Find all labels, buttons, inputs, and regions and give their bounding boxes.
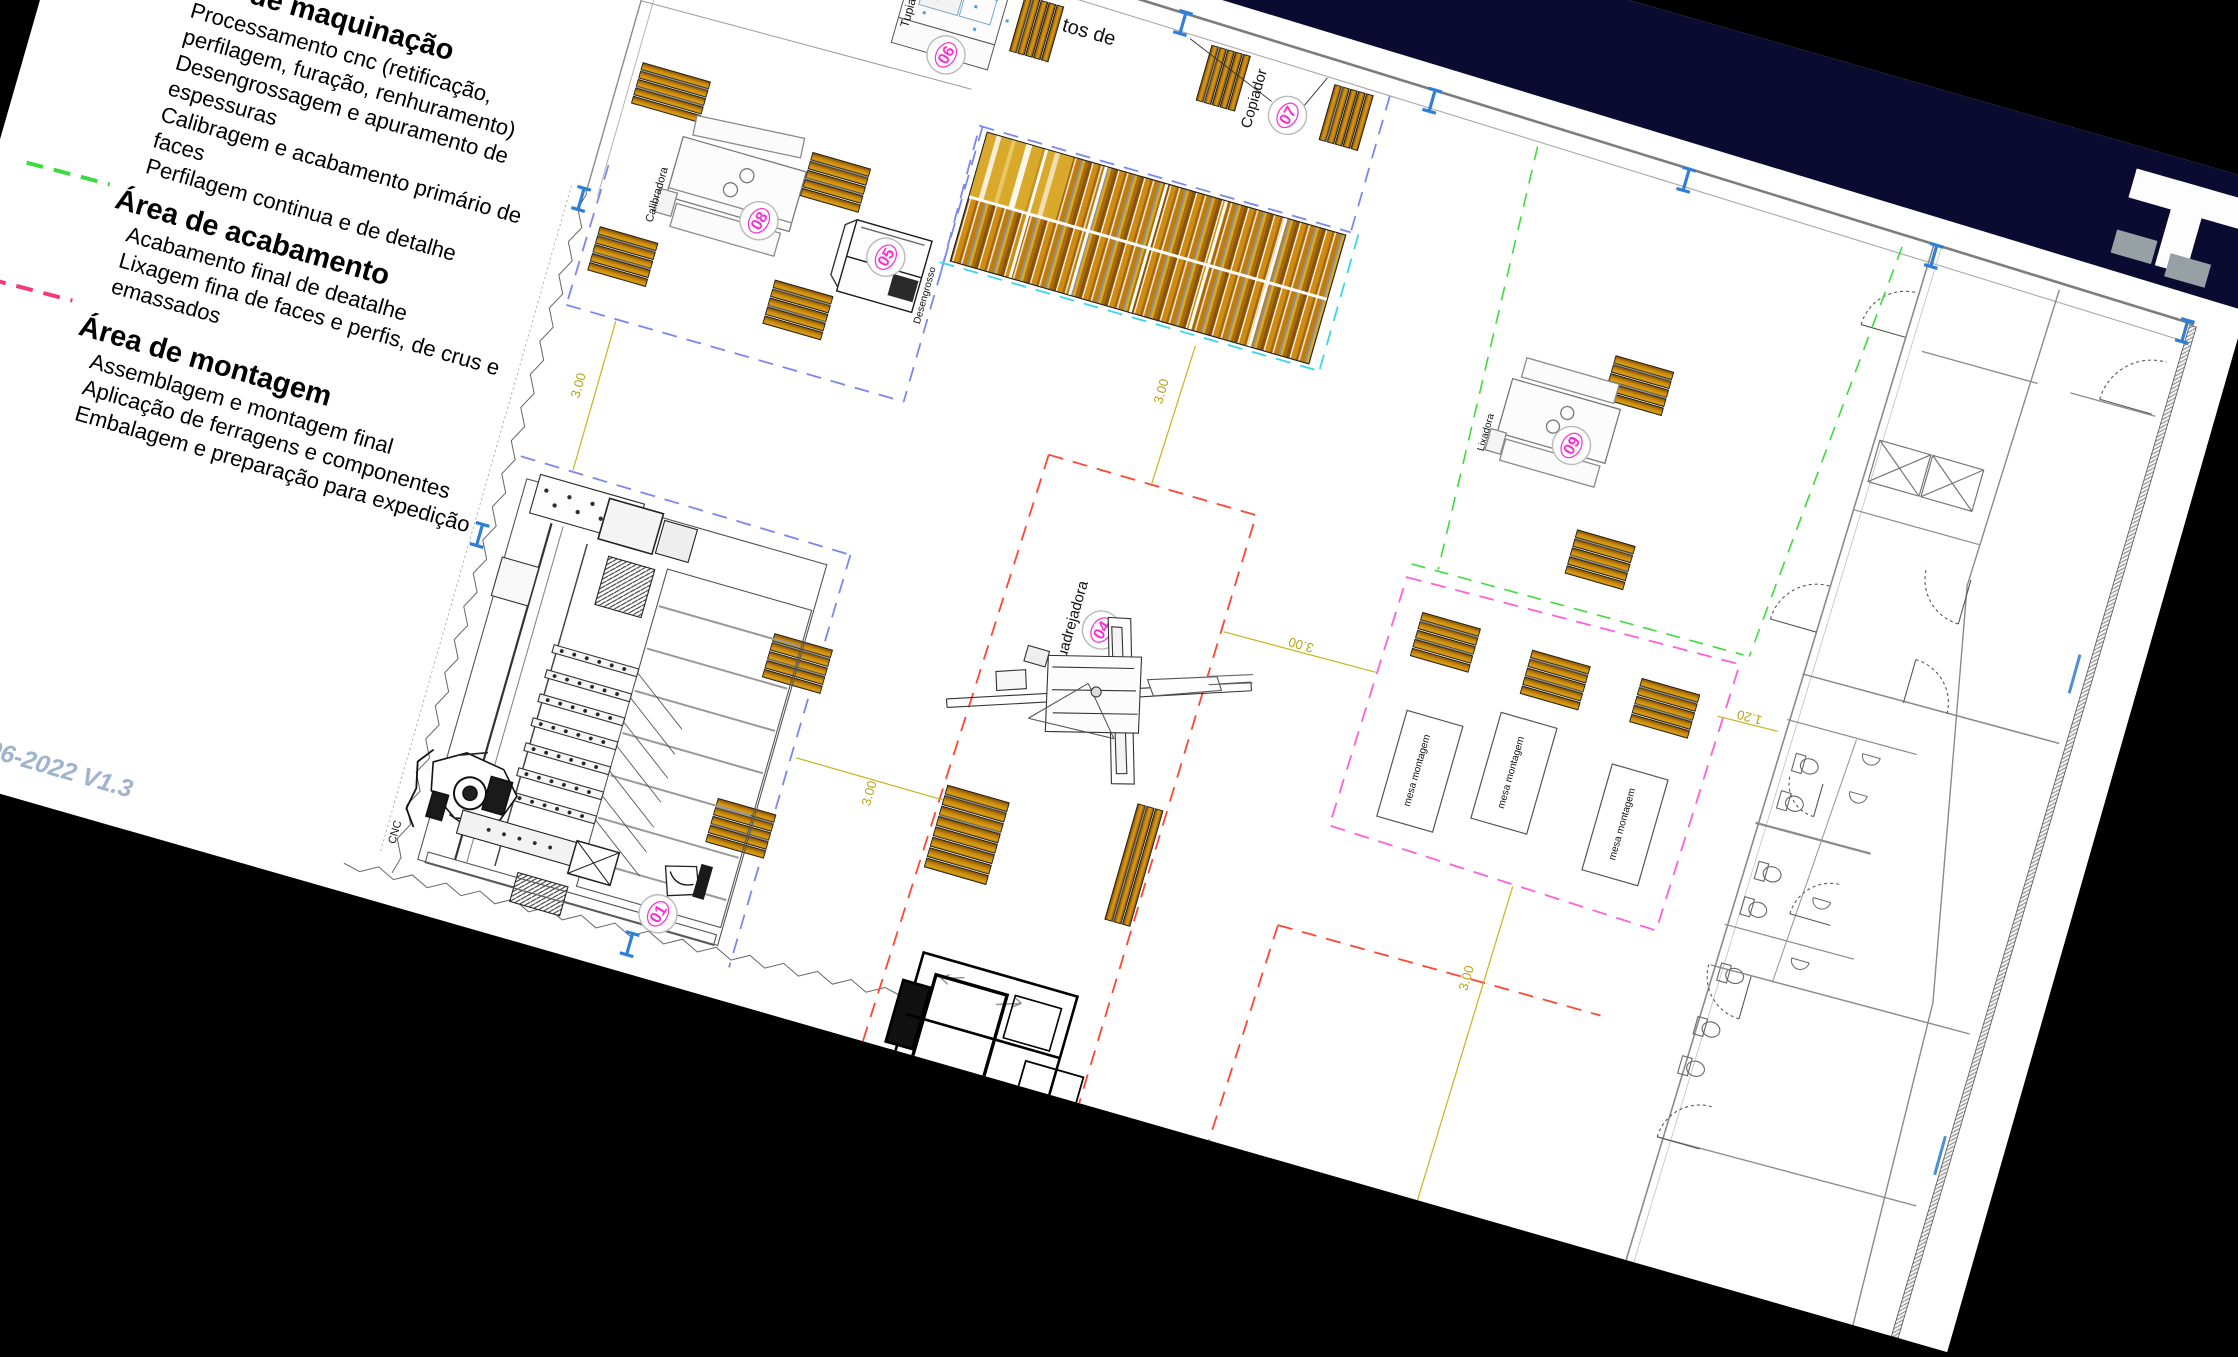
svg-text:3.00: 3.00 [1287,634,1315,655]
svg-text:3.00: 3.00 [567,371,588,399]
svg-text:3.00: 3.00 [858,779,879,807]
svg-text:CNC: CNC [386,819,404,845]
svg-text:26-06-2022 V1.3: 26-06-2022 V1.3 [0,725,136,804]
svg-text:tos de: tos de [1060,14,1118,50]
svg-text:3.00: 3.00 [1150,377,1171,405]
svg-text:3.00: 3.00 [1455,964,1476,992]
svg-text:1.20: 1.20 [1735,707,1763,728]
